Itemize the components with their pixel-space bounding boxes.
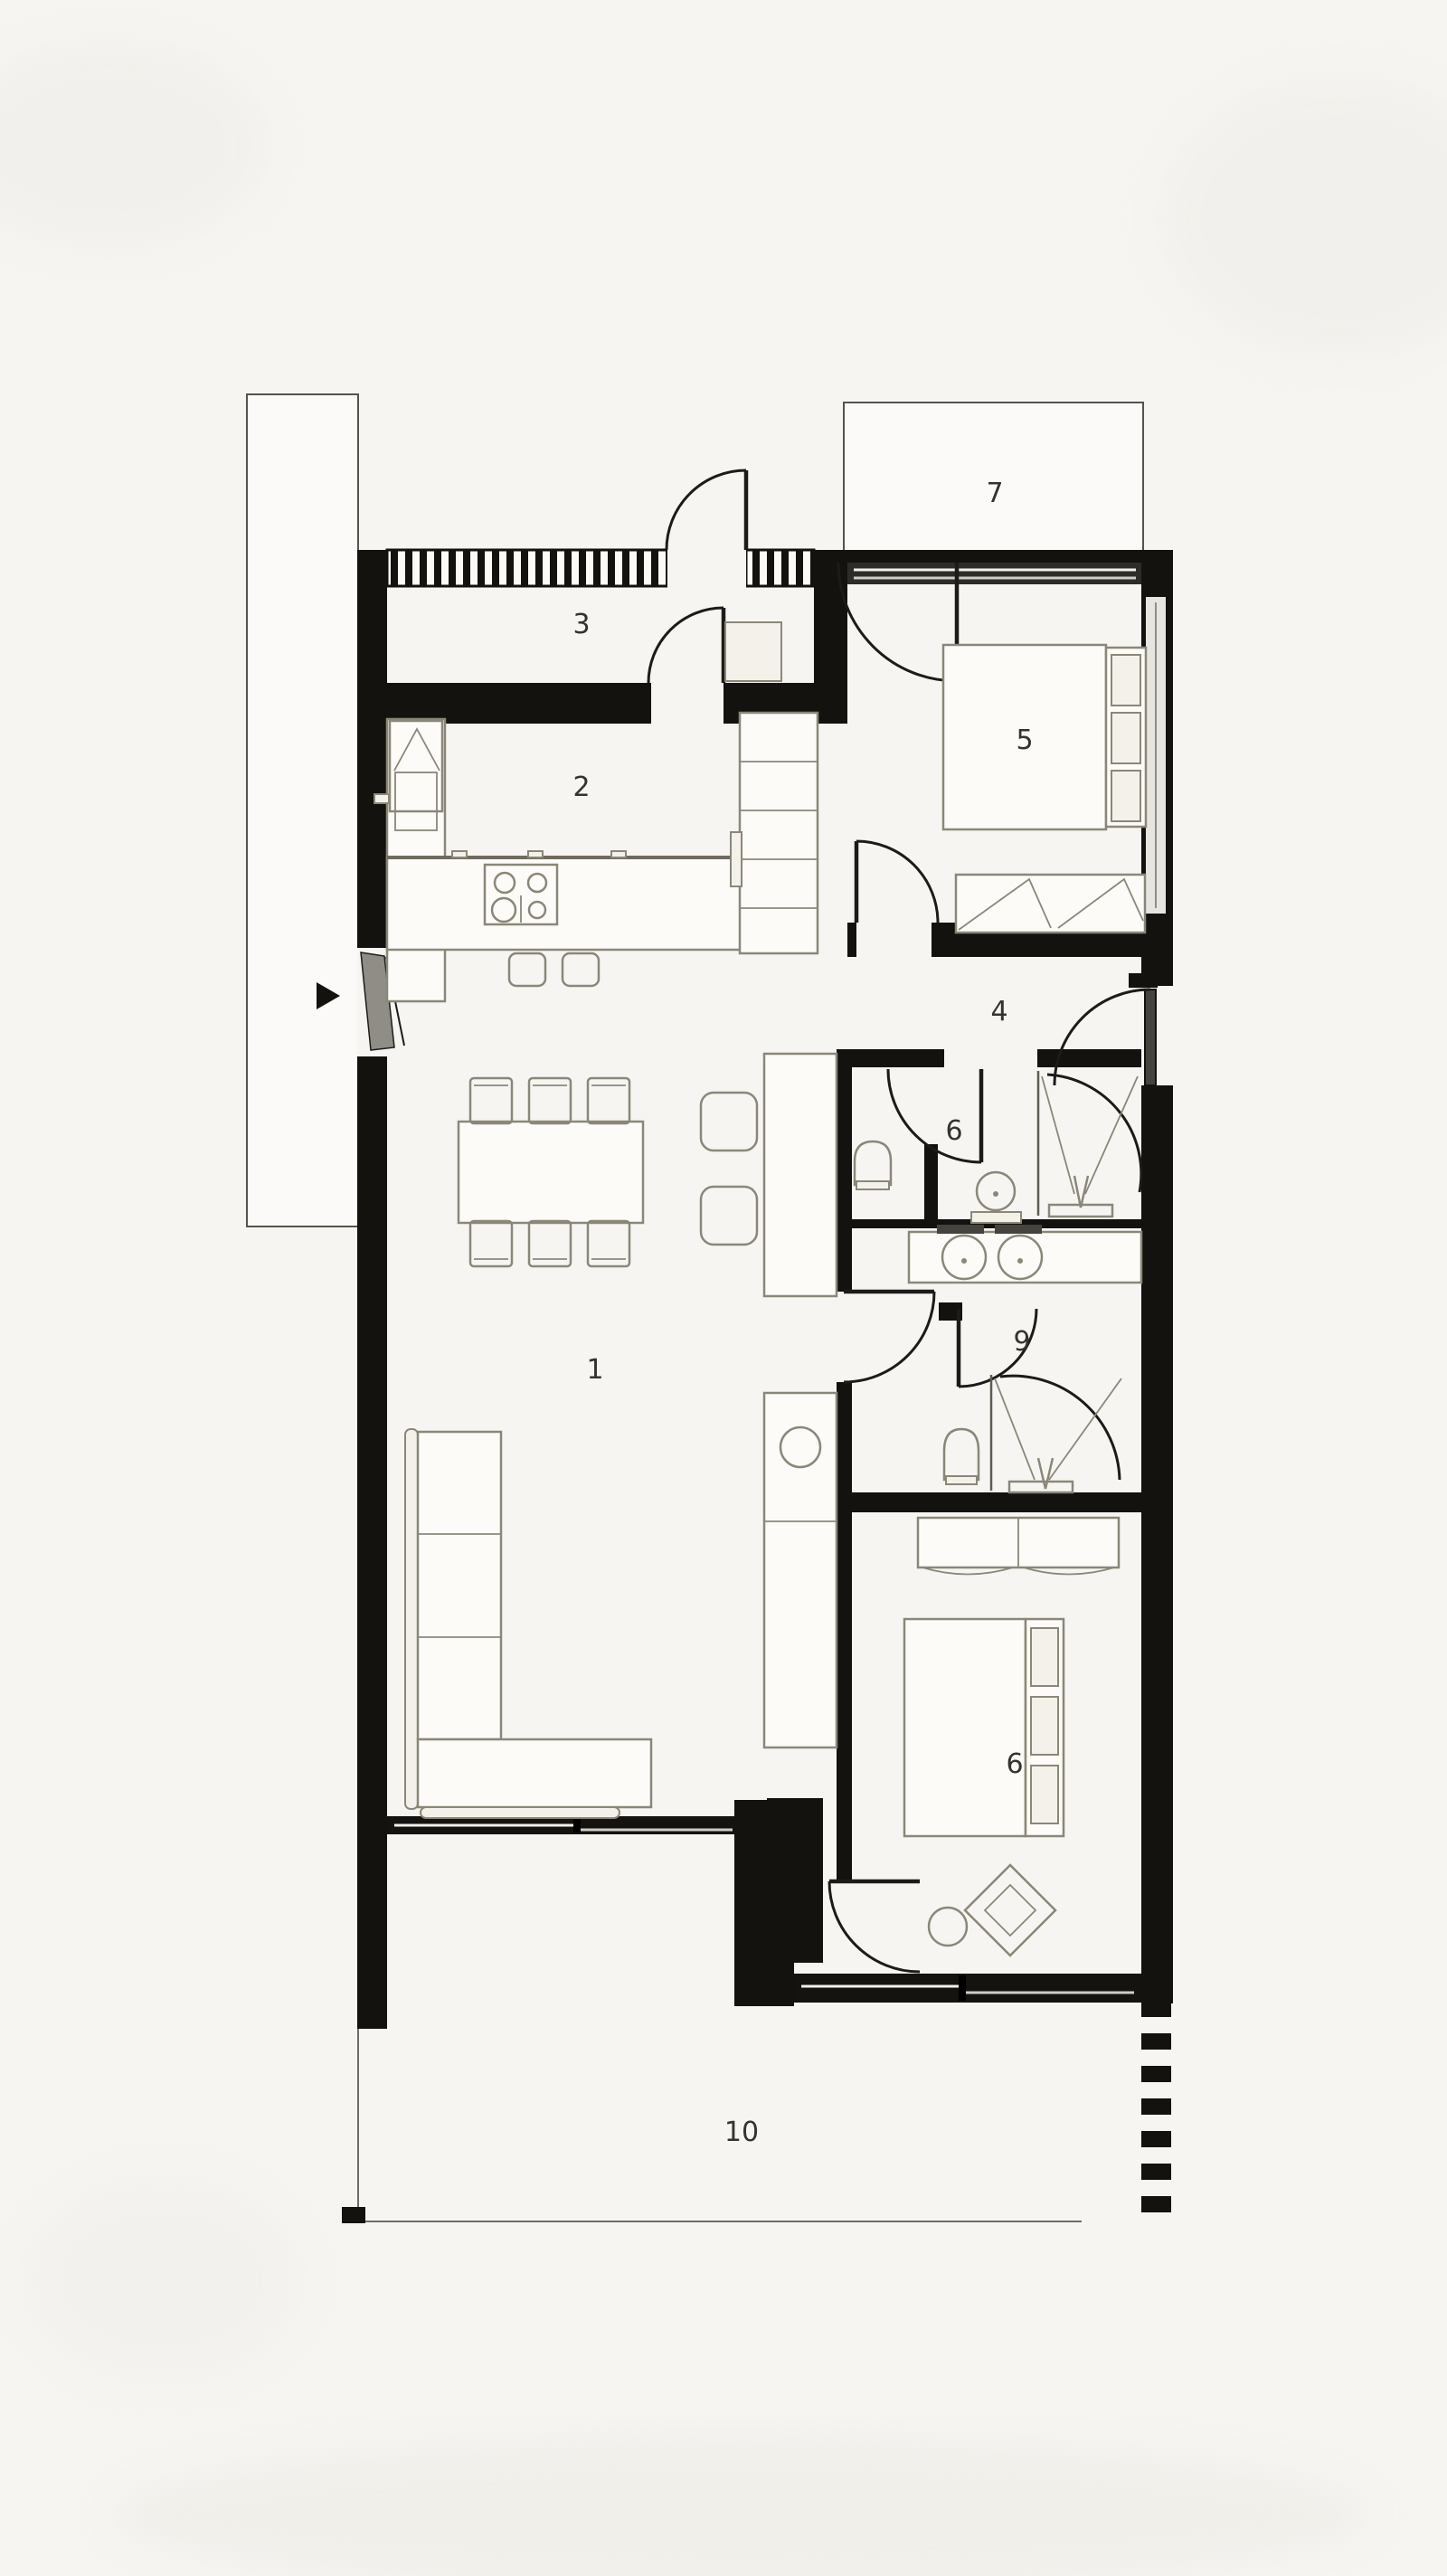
sofa-foot-strip [421,1807,619,1818]
driveway-outline [247,394,358,1226]
vanity-counter [909,1232,1141,1283]
shower-1 [1038,1071,1141,1217]
bathroom-1 [855,1071,1141,1283]
top-door-swing-arc [667,470,746,550]
island-handle [452,851,467,857]
kitchen-appliance-tap [374,794,389,803]
bathroom-2 [944,1375,1121,1492]
bed2-cushion [1031,1628,1058,1686]
bed2-cushion [1031,1766,1058,1823]
toilet-base [946,1476,977,1484]
dining-table [459,1122,643,1223]
room-label-bedroom-2: 6 [1006,1748,1023,1780]
cabinet-handle [731,832,742,886]
bed2-mattress [904,1619,1026,1836]
basin-drain [993,1191,998,1197]
island-handle [528,851,543,857]
room-label-entry: 3 [572,609,590,640]
bed1-cushion [1111,655,1140,706]
bed1-hall-door-swing-arc [856,841,938,923]
corridor-cabinet [764,1393,837,1747]
bedroom-1 [943,645,1146,933]
corridor-desk [701,1054,837,1296]
sofa-chaise [418,1739,651,1807]
room-label-terrace: 10 [724,2117,759,2148]
wall-hall-bottom-left [837,1049,944,1067]
paper-texture [0,36,1447,2576]
bed1-top-window [847,563,1141,584]
bed2-door-swing-arc [829,1881,920,1972]
shower-funnel [1038,1458,1053,1489]
kitchen-tall-cabinets [731,713,818,953]
dash [1141,2066,1171,2082]
bar-stool [563,953,599,986]
hatched-wall-right [746,550,814,586]
island-handle [611,851,626,857]
double-vanity [909,1225,1141,1283]
shower-tray [1009,1482,1073,1492]
bed2-dresser [918,1518,1119,1575]
bath1-door-swing-arc [888,1069,981,1162]
wall-bath1-partition [924,1144,938,1219]
hatched-wall-left [387,550,667,586]
boundary-dashes [1141,2001,1171,2212]
hall-door-swing-arc [1055,990,1150,1085]
bed1-cushion [1111,713,1140,763]
wall-pier-foot [767,1961,794,2006]
living-sliding-divider [573,1818,581,1833]
shower-line [1049,1378,1121,1480]
dash [1141,2164,1171,2180]
cabinet-body [764,1393,837,1747]
room-label-bathroom-1: 6 [945,1115,962,1147]
dash [1141,2033,1171,2050]
vanity-backsplash [995,1225,1042,1234]
paper-blotch [1158,72,1447,362]
room3-door-swing-arc [648,608,723,683]
wall-corridor-upper [837,1067,852,1292]
vanity-backsplash [937,1225,984,1234]
dash [1141,2196,1171,2212]
shower-line [1085,1076,1138,1194]
paper-blotch [18,2171,307,2388]
top-door-gap [667,548,746,588]
bed1-bench [956,875,1145,933]
bed2-cushion [1031,1697,1058,1755]
dash [1141,2131,1171,2147]
shower-2 [991,1375,1121,1492]
cabinet-column [740,713,818,953]
room-label-living: 1 [586,1354,603,1386]
shower-line [1042,1076,1074,1194]
wall-pier-upper [767,1798,823,1963]
floor-plan-page: 1 2 3 4 5 6 7 6 9 10 [0,0,1447,2576]
paper-blotch [109,2433,1375,2576]
wall-hall-bottom-right [1037,1049,1141,1067]
hall-door-leaf [1145,990,1156,1085]
room3-cabinet [725,622,781,681]
basin-drain [1017,1258,1023,1264]
room-label-bedroom-1: 5 [1016,724,1033,756]
room-label-kitchen: 2 [572,772,590,803]
desk-chair [701,1093,757,1151]
room-label-balcony: 7 [986,478,1003,509]
dash [1141,2098,1171,2115]
corridor-door-swing-arc [844,1292,934,1382]
hall-door-hinge [1129,973,1158,988]
kitchen [374,713,818,1001]
room-label-hallway: 4 [990,996,1007,1028]
bed2-sliding-door [794,1974,1141,2003]
terrace-post [342,2207,365,2223]
sofa-back-strip [405,1429,418,1809]
basin-drain [961,1258,967,1264]
wall-bed1-top [847,550,1173,563]
wall-left [357,550,387,2029]
wall-corridor-lower [837,1619,852,1881]
bar-stool [509,953,545,986]
room-label-bathroom-2: 9 [1013,1326,1030,1358]
wall-bed1-bottom-stub [847,923,856,957]
shower-line [995,1378,1035,1480]
paper-blotch [0,36,271,253]
desk-counter [764,1054,837,1296]
basin-base [971,1212,1021,1223]
toilet-icon [944,1429,979,1480]
wall-room3-bottom-left [387,683,651,724]
bedroom-2 [904,1518,1119,1956]
lounge-chair-diamond-inner [985,1885,1036,1936]
bed1-cushion [1111,771,1140,821]
wall-bath2-bottom [837,1492,1141,1512]
bed2-sliding-divider [959,1975,966,2001]
room3-door-gap [651,683,723,724]
sofa-seats [418,1432,501,1739]
wall-pier-column [734,1800,769,2006]
desk-chair [701,1187,757,1245]
pouf [929,1908,967,1946]
toilet-base [856,1181,889,1189]
dining [459,1078,643,1266]
toilet-icon [855,1141,891,1185]
wall-right-lower [1141,1085,1173,2003]
lounge-chair-diamond [965,1865,1055,1956]
